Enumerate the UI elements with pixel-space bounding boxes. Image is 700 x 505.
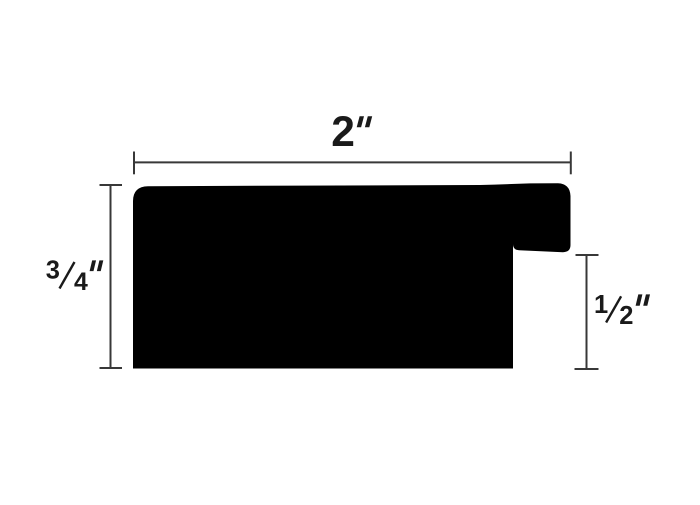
svg-text:4: 4 [74,269,88,296]
svg-text:1: 1 [594,291,608,319]
svg-text:2: 2 [331,109,355,156]
svg-text:3: 3 [46,256,60,284]
svg-text:2: 2 [619,302,633,330]
